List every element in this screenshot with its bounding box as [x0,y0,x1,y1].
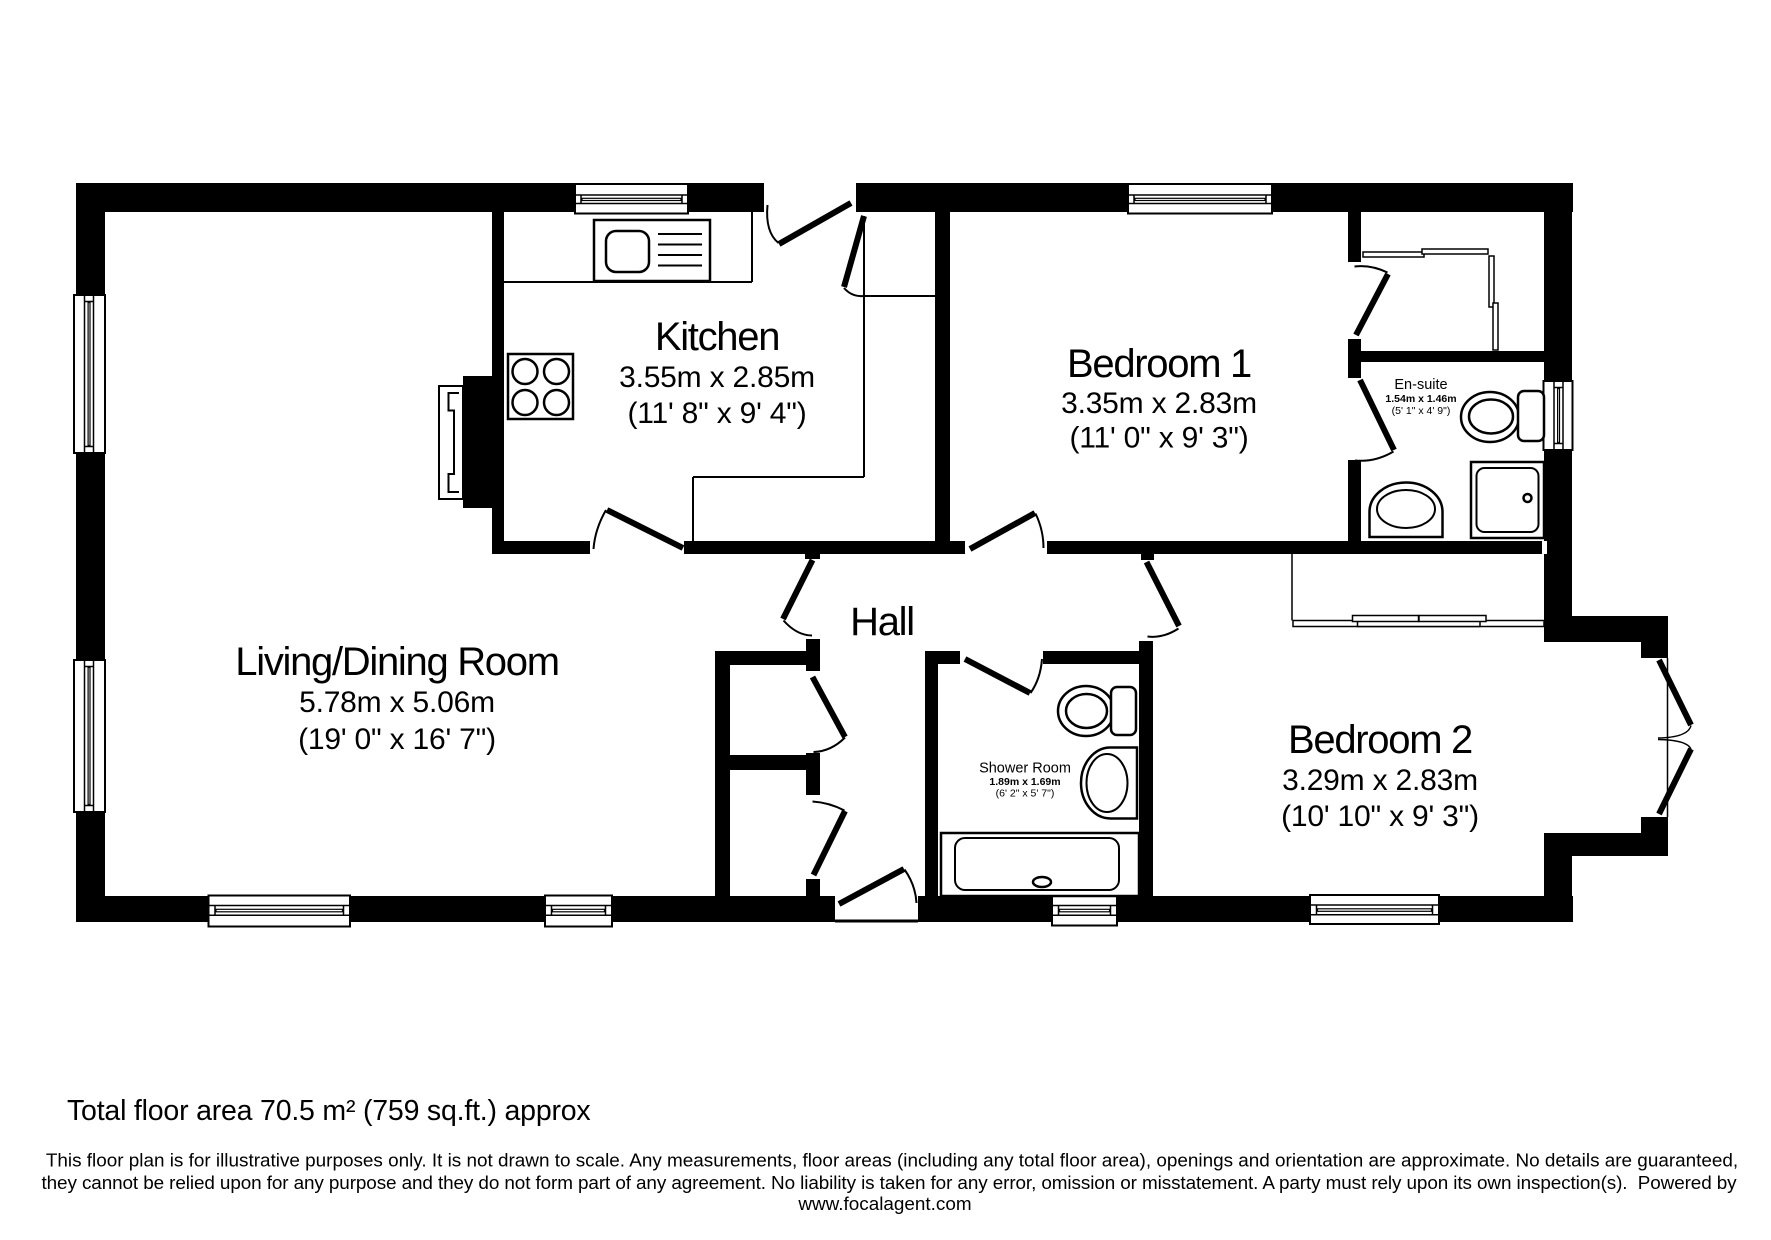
svg-text:(19' 0" x 16' 7"): (19' 0" x 16' 7") [298,723,496,756]
svg-text:3.55m x 2.85m: 3.55m x 2.85m [619,361,815,394]
svg-text:www.focalagent.com: www.focalagent.com [797,1194,971,1215]
svg-text:En-suite: En-suite [1394,377,1447,393]
svg-text:(10' 10" x 9' 3"): (10' 10" x 9' 3") [1281,800,1479,833]
svg-text:Kitchen: Kitchen [655,315,779,359]
svg-text:This floor plan is for illustr: This floor plan is for illustrative purp… [46,1151,1738,1172]
svg-text:1.89m x 1.69m: 1.89m x 1.69m [989,776,1060,788]
svg-text:(11' 8" x 9' 4"): (11' 8" x 9' 4") [627,397,806,430]
svg-text:Living/Dining Room: Living/Dining Room [235,640,558,684]
svg-text:Bedroom 1: Bedroom 1 [1067,342,1251,386]
svg-text:Hall: Hall [850,600,914,644]
svg-text:5.78m x 5.06m: 5.78m x 5.06m [299,686,495,719]
svg-text:Bedroom 2: Bedroom 2 [1288,718,1472,762]
svg-text:1.54m x 1.46m: 1.54m x 1.46m [1385,393,1456,405]
svg-text:3.35m x 2.83m: 3.35m x 2.83m [1061,387,1257,420]
svg-text:they cannot be relied upon for: they cannot be relied upon for any purpo… [41,1173,1737,1194]
svg-text:(5' 1" x 4' 9"): (5' 1" x 4' 9") [1392,405,1451,417]
svg-text:(6' 2" x 5' 7"): (6' 2" x 5' 7") [996,788,1055,800]
svg-text:(11' 0" x 9' 3"): (11' 0" x 9' 3") [1069,422,1248,455]
svg-text:3.29m x 2.83m: 3.29m x 2.83m [1282,764,1478,797]
svg-text:Total floor area 70.5 m² (759: Total floor area 70.5 m² (759 sq.ft.) ap… [67,1095,590,1127]
svg-text:Shower Room: Shower Room [979,761,1071,777]
